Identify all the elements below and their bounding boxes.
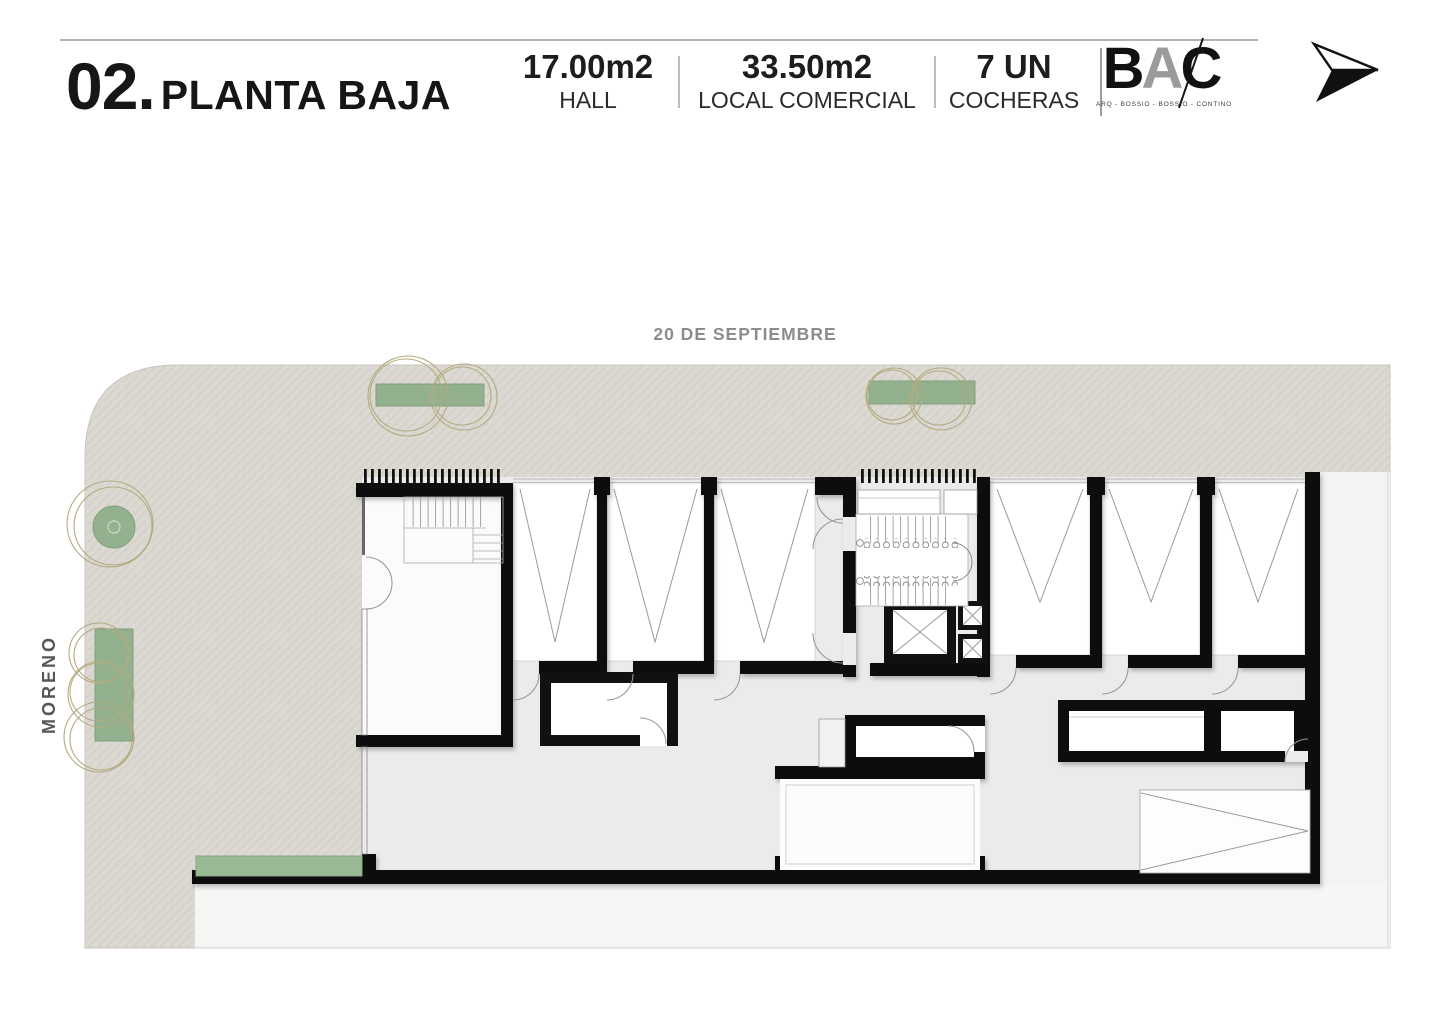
entry-hatch-core (857, 469, 977, 483)
planter-top-left (376, 384, 484, 406)
planter-bottom-strip (196, 856, 362, 876)
planter-left-round (93, 506, 135, 548)
side-lot-strip (1320, 472, 1390, 948)
street-label-top: 20 DE SEPTIEMBRE (653, 324, 836, 344)
street-label-left: MORENO (39, 635, 59, 734)
floor-plan: 20 DE SEPTIEMBRE MORENO (0, 0, 1440, 1018)
core-stair (856, 490, 977, 606)
page: { "header": { "number": "02.", "title": … (0, 0, 1440, 1018)
rear-lot-strip (195, 884, 1388, 948)
entry-hatch-hall (360, 469, 500, 483)
garage-ramp (1140, 790, 1310, 873)
